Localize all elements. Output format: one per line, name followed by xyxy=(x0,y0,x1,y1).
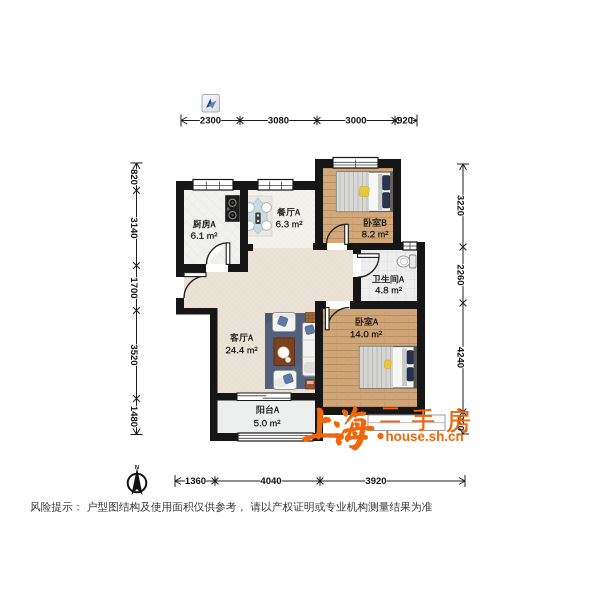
svg-text:1480: 1480 xyxy=(128,406,139,427)
svg-text:1700: 1700 xyxy=(128,277,139,298)
svg-text:N: N xyxy=(135,465,139,471)
svg-text:2260: 2260 xyxy=(454,264,465,285)
svg-text:3140: 3140 xyxy=(128,217,139,238)
svg-text:3000: 3000 xyxy=(345,116,366,127)
svg-text:3080: 3080 xyxy=(268,116,289,127)
svg-text:820: 820 xyxy=(128,169,139,185)
svg-text:3520: 3520 xyxy=(128,344,139,365)
svg-text:4040: 4040 xyxy=(260,476,281,487)
svg-text:4240: 4240 xyxy=(454,347,465,368)
svg-text:3920: 3920 xyxy=(365,476,386,487)
svg-text:2300: 2300 xyxy=(200,116,221,127)
svg-text:920: 920 xyxy=(397,116,413,127)
svg-text:house.sh.cn: house.sh.cn xyxy=(386,429,464,444)
svg-text:3220: 3220 xyxy=(454,195,465,216)
svg-text:1360: 1360 xyxy=(185,476,206,487)
